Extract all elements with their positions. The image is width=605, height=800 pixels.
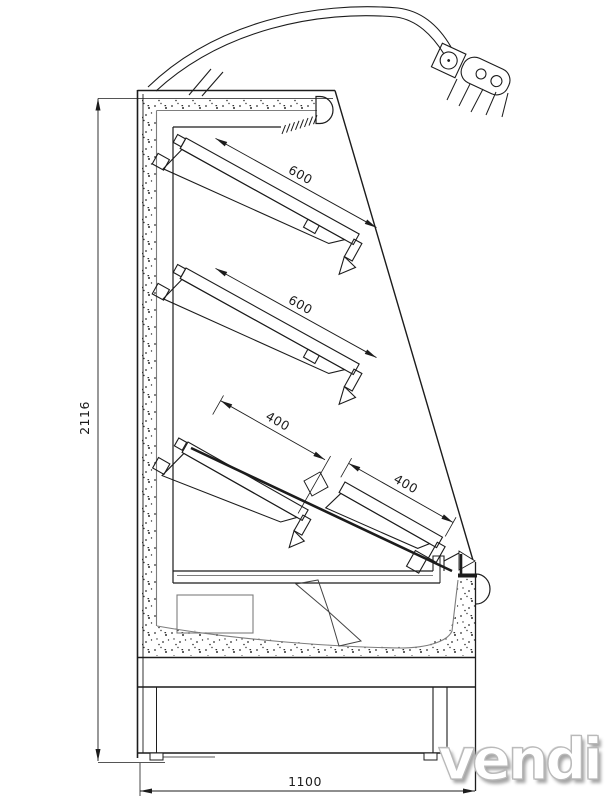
leveling-foot-right <box>424 753 437 760</box>
shelf-1-dimension-label: 600 <box>286 162 315 187</box>
bumper-arc <box>476 574 490 604</box>
shelf-600-upper: 600 <box>149 103 385 280</box>
cabinet-outline <box>138 90 476 791</box>
fan-symbol-icon <box>296 580 361 646</box>
shelf-2-dimension-label: 600 <box>286 292 315 317</box>
shelf-support-rail <box>191 448 452 571</box>
light-rays-icon <box>447 79 508 117</box>
shelf-joint-connector <box>304 472 328 496</box>
width-dimension-label: 1100 <box>288 774 322 789</box>
canopy-arc <box>148 7 451 96</box>
shelf-3-dimension-label: 400 <box>263 408 292 434</box>
base-plinth <box>138 687 448 760</box>
leveling-foot-left <box>150 753 163 760</box>
shelf-2-dimension-line <box>216 268 377 357</box>
evaporator-box <box>177 595 253 633</box>
bottom-deck <box>173 553 459 583</box>
width-dimension: 1100 <box>140 763 475 796</box>
honeycomb-outlet <box>316 97 333 124</box>
shelf-4-dimension-label: 400 <box>391 471 420 497</box>
cabinet-section-drawing: 600 600 400 400 <box>0 0 605 800</box>
height-dimension-label: 2116 <box>77 401 92 435</box>
vendi-watermark-logo: vendi <box>438 732 605 789</box>
lamp-fixture <box>431 41 514 99</box>
shelf-400-rear: 400 <box>152 372 353 552</box>
shelf-600-lower: 600 <box>149 233 385 410</box>
air-curtain-ticks <box>282 115 317 134</box>
drawing-canvas: 600 600 400 400 <box>0 0 605 800</box>
